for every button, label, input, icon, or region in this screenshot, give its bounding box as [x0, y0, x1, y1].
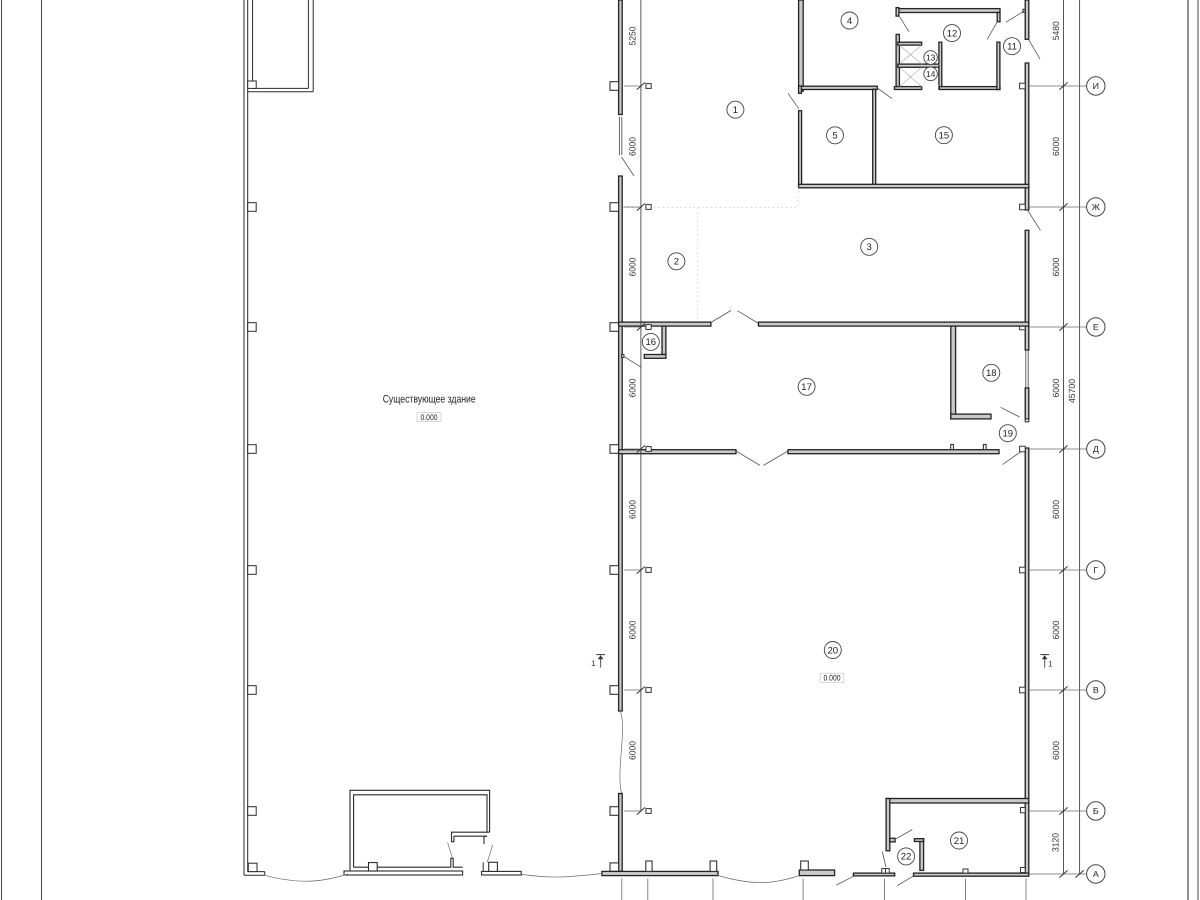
svg-text:Е: Е [1093, 322, 1099, 332]
svg-text:6000: 6000 [628, 621, 638, 640]
svg-text:6000: 6000 [1051, 500, 1061, 519]
svg-text:Существующее здание: Существующее здание [383, 393, 476, 405]
svg-text:Г: Г [1093, 565, 1098, 575]
svg-text:3: 3 [867, 242, 872, 253]
svg-text:6000: 6000 [628, 137, 638, 156]
svg-text:6000: 6000 [1051, 741, 1061, 760]
svg-text:21: 21 [954, 836, 965, 847]
svg-text:1: 1 [591, 659, 596, 668]
svg-text:15: 15 [939, 131, 950, 142]
svg-text:3120: 3120 [1051, 833, 1061, 852]
svg-text:2: 2 [674, 257, 679, 268]
svg-text:22: 22 [901, 852, 912, 863]
svg-text:В: В [1093, 685, 1099, 695]
svg-text:Ж: Ж [1092, 202, 1100, 212]
svg-text:14: 14 [926, 69, 936, 79]
svg-text:20: 20 [828, 645, 839, 656]
svg-text:5250: 5250 [628, 27, 638, 46]
svg-text:13: 13 [926, 53, 936, 63]
svg-text:А: А [1093, 869, 1099, 879]
svg-text:0.000: 0.000 [421, 413, 438, 422]
svg-text:0.000: 0.000 [824, 674, 841, 683]
svg-text:19: 19 [1003, 429, 1014, 440]
svg-text:16: 16 [646, 337, 657, 348]
svg-text:1: 1 [733, 105, 738, 116]
svg-text:5480: 5480 [1051, 21, 1061, 40]
svg-text:6000: 6000 [628, 741, 638, 760]
svg-text:6000: 6000 [1051, 379, 1061, 398]
svg-text:И: И [1093, 81, 1099, 91]
svg-text:18: 18 [986, 368, 997, 379]
svg-text:6000: 6000 [628, 379, 638, 398]
svg-text:1: 1 [1048, 660, 1053, 669]
svg-text:Д: Д [1093, 444, 1099, 454]
svg-text:6000: 6000 [628, 258, 638, 277]
svg-text:6000: 6000 [628, 500, 638, 519]
svg-text:6000: 6000 [1051, 137, 1061, 156]
svg-text:45700: 45700 [1067, 379, 1077, 403]
svg-text:5: 5 [832, 131, 837, 142]
svg-text:17: 17 [801, 382, 812, 393]
svg-text:6000: 6000 [1051, 621, 1061, 640]
svg-text:6000: 6000 [1051, 258, 1061, 277]
svg-text:12: 12 [947, 28, 958, 39]
svg-text:Б: Б [1093, 806, 1099, 816]
svg-text:11: 11 [1007, 42, 1017, 53]
svg-text:4: 4 [847, 16, 852, 27]
